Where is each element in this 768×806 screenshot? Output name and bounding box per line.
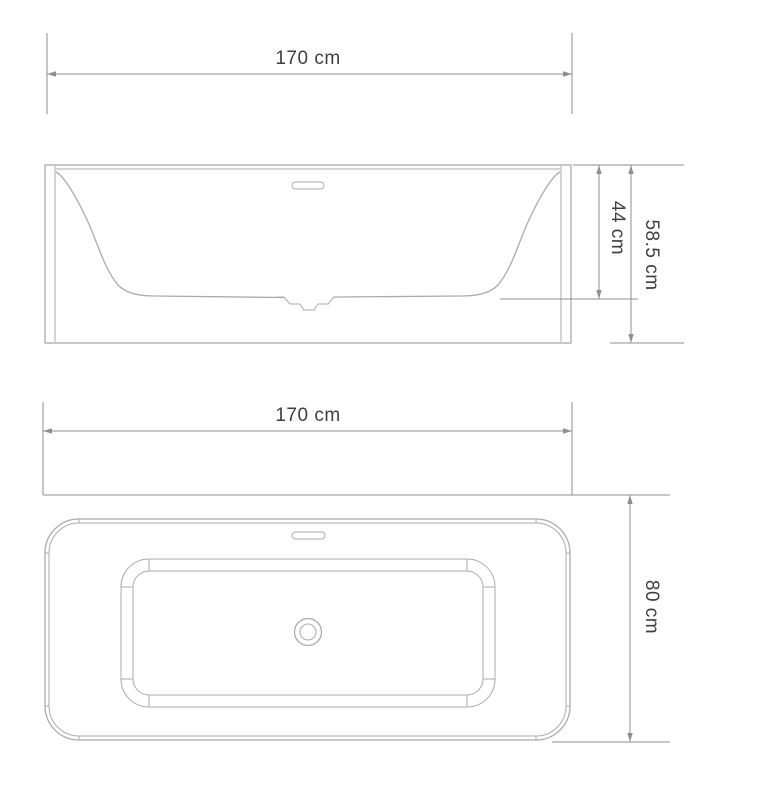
basin-profile-curve: [56, 172, 560, 298]
arrowhead-right: [563, 428, 572, 433]
basin-corner-ticks: [121, 559, 495, 707]
drain-inner-circle: [300, 624, 316, 640]
arrowhead-top: [627, 495, 632, 504]
dimension-front-width: 170 cm: [47, 33, 572, 114]
technical-drawing-canvas: 170 cm 44 cm 58.5 cm: [0, 0, 768, 806]
front-elevation-view: [45, 165, 571, 343]
arrowhead-left: [43, 428, 52, 433]
inner-depth-label: 44 cm: [607, 201, 628, 255]
arrowhead-top: [628, 165, 633, 174]
top-plan-view: [45, 519, 570, 740]
bathtub-technical-drawing: 170 cm 44 cm 58.5 cm: [0, 0, 768, 806]
arrowhead-bottom: [627, 733, 632, 742]
arrowhead-top: [596, 165, 601, 174]
arrowhead-bottom: [628, 334, 633, 343]
top-depth-label: 80 cm: [641, 580, 662, 634]
rim-inner-outline: [49, 523, 566, 736]
arrowhead-bottom: [596, 290, 601, 299]
basin-outer-outline: [121, 559, 495, 707]
drain-symbol: [295, 619, 322, 646]
dimension-top-width: 170 cm: [43, 402, 572, 495]
drain-outer-circle: [295, 619, 322, 646]
overflow-slot-top: [292, 532, 325, 539]
overall-height-label: 58.5 cm: [641, 219, 662, 290]
arrowhead-right: [563, 71, 572, 76]
overflow-slot-front: [292, 182, 324, 189]
top-width-label: 170 cm: [275, 405, 340, 426]
arrowhead-left: [47, 71, 56, 76]
tub-outer-outline: [45, 165, 571, 343]
front-width-label: 170 cm: [275, 48, 340, 69]
drain-mask: [284, 293, 334, 300]
basin-inner-outline: [133, 571, 483, 695]
